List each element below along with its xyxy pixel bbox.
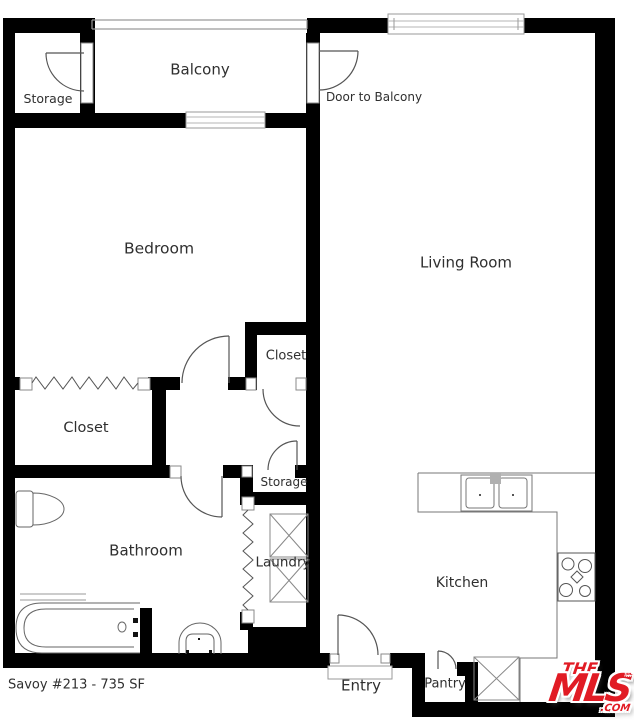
- small-closet-door: [263, 389, 300, 426]
- living-room-window: [388, 14, 524, 34]
- closet-large-label: Closet: [63, 421, 108, 436]
- kitchen-label: Kitchen: [436, 576, 489, 590]
- refrigerator-box: [474, 657, 519, 700]
- bedroom-label: Bedroom: [124, 241, 194, 257]
- bedroom-window: [186, 112, 265, 128]
- pedestal-sink: [179, 623, 221, 654]
- entry-door: [338, 615, 378, 655]
- kitchen-double-sink: [461, 473, 532, 511]
- bedroom-door: [182, 336, 229, 383]
- bathroom-label: Bathroom: [109, 544, 183, 559]
- pantry-door: [438, 651, 456, 669]
- mls-logo: THE MLS ™ .COM: [543, 650, 634, 718]
- storage-hall-label: Storage: [261, 476, 308, 488]
- entry-label: Entry: [341, 679, 381, 694]
- walls: [3, 18, 615, 717]
- pantry-label: Pantry: [424, 678, 466, 691]
- storage-balcony-label: Storage: [24, 93, 73, 106]
- washer-box: [270, 514, 308, 557]
- logo-com-text: .COM: [600, 703, 631, 714]
- laundry-bifold: [243, 510, 253, 610]
- bathroom-fixtures: [16, 491, 221, 654]
- toilet: [16, 491, 64, 527]
- living-room-label: Living Room: [420, 256, 512, 271]
- storage-balcony-door: [46, 53, 84, 91]
- balcony-label: Balcony: [170, 63, 229, 78]
- door-to-balcony-door: [319, 51, 358, 90]
- closet-small-label: Closet: [266, 350, 307, 363]
- door-jambs: [20, 43, 390, 663]
- balcony-railing: [92, 20, 307, 29]
- logo-trademark: ™: [625, 672, 633, 680]
- floor-plan-drawing: [0, 0, 634, 720]
- bathroom-door: [181, 476, 222, 517]
- listing-info: Savoy #213 - 735 SF: [8, 679, 145, 692]
- door-to-balcony-label: Door to Balcony: [326, 91, 422, 103]
- bathtub: [16, 603, 140, 653]
- bifold-doors: [32, 377, 253, 610]
- hall-storage-door: [268, 441, 297, 470]
- floor-plan-page: Balcony Storage Door to Balcony Bedroom …: [0, 0, 634, 720]
- bedroom-closet-bifold: [32, 377, 138, 389]
- laundry-label: Laundry: [255, 556, 310, 570]
- stove: [558, 553, 595, 601]
